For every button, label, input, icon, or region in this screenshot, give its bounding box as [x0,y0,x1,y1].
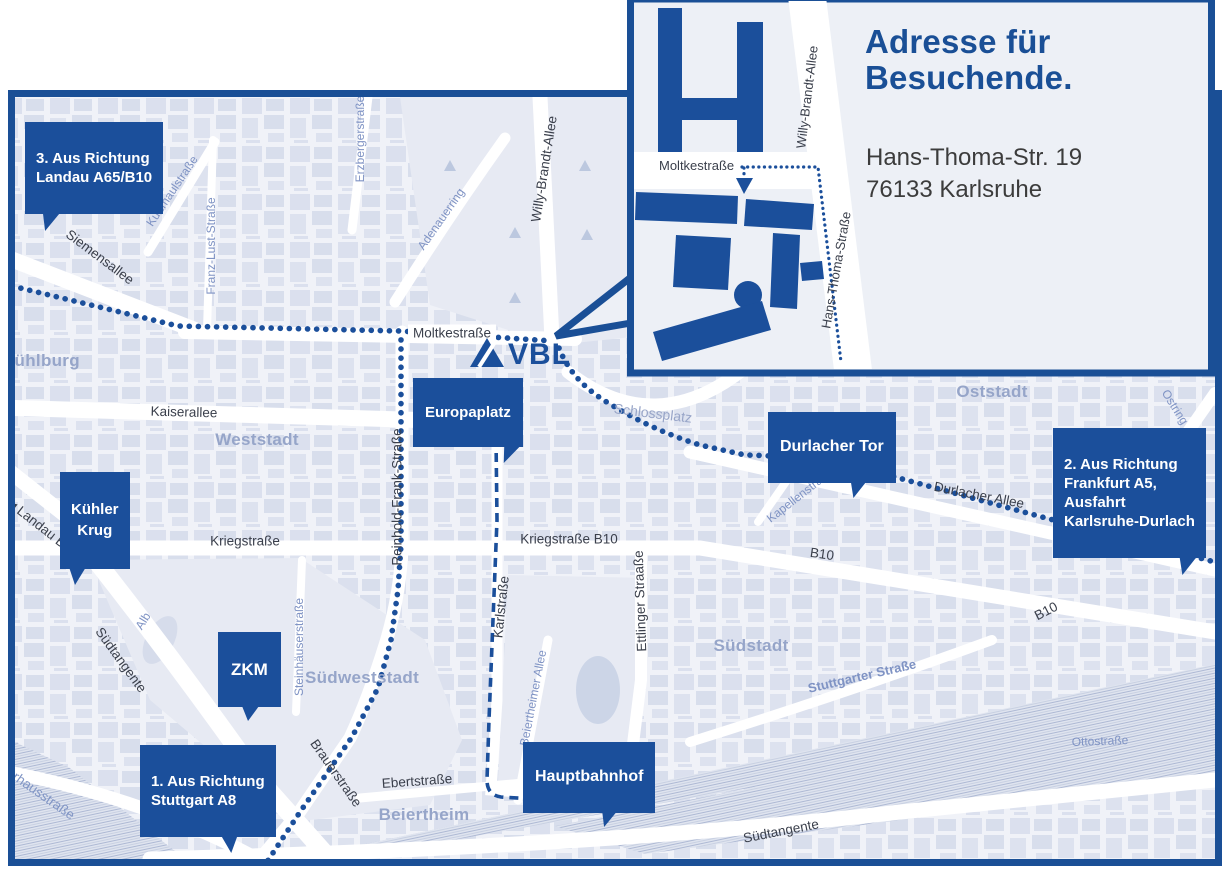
street-label-beiertheimer-allee: Beiertheimer Allee [517,649,549,747]
callout-hauptbahnhof-text: Hauptbahnhof [535,768,643,785]
street-label-ettlinger-strasse: Ettlinger Straaße [631,550,650,652]
callout-zkm: ZKM [218,632,281,707]
callout-route-stuttgart: 1. Aus Richtung Stuttgart A8 [140,745,276,837]
inset-title: Adresse für Besuchende. [865,24,1073,97]
callout-route-frankfurt-text: 2. Aus Richtung Frankfurt A5, Ausfahrt K… [1064,456,1195,530]
street-label-erzbergerstrasse: Erzbergerstraße [353,97,367,182]
callout-route-stuttgart-text: 1. Aus Richtung Stuttgart A8 [151,773,265,809]
street-label-adenauerring: Adenauerring [415,185,468,252]
street-label-siemensallee: Siemensallee [63,227,137,288]
callout-tail [69,567,86,585]
karlsruhe-directions-map: Mühlburg Weststadt Südweststadt Südstadt… [0,0,1230,874]
callout-tail [847,480,867,498]
street-label-stuttgarter-strasse: Stuttgarter Straße [806,656,917,695]
street-label-reinhold-frank-strasse: Reinhold-Frank-Straße [390,428,405,565]
callout-kuehler-krug: Kühler Krug [60,472,130,569]
street-label-kaiserallee: Kaiserallee [150,404,217,421]
street-label-ottostrasse: Ottostraße [1071,733,1128,749]
district-suedweststadt: Südweststadt [305,668,419,688]
street-label-suedtangente-sued: Südtangente [742,816,820,845]
vbl-logo-text: VBL [508,341,571,370]
district-oststadt: Oststadt [956,382,1027,402]
callout-durlacher-tor: Durlacher Tor [768,412,896,483]
vbl-triangle-icon [468,336,506,369]
street-label-franz-lust-strasse: Franz-Lust-Straße [204,197,218,294]
vbl-logo: VBL [468,336,571,369]
district-muehlburg: Mühlburg [15,351,80,371]
callout-route-landau-text: 3. Aus Richtung Landau A65/B10 [36,150,152,186]
street-label-pulverhausstrasse: Pulverhausstraße [15,750,78,823]
street-label-ostring: Ostring [1159,387,1191,427]
place-label-schlossplatz: Schlossplatz [613,400,693,425]
street-label-b10-suedost: B10 [1032,599,1060,623]
street-label-suedtangente-west: Südtangente [92,625,149,696]
street-label-karlstrasse: Karlstraße [490,575,511,639]
inset-address: Hans-Thoma-Str. 19 76133 Karlsruhe [866,142,1082,205]
callout-route-landau: 3. Aus Richtung Landau A65/B10 [25,122,163,214]
river-label-alb: Alb [132,610,153,632]
district-weststadt: Weststadt [215,430,299,450]
district-suedstadt: Südstadt [713,636,788,656]
street-label-kriegstrasse: Kriegstraße [210,534,280,549]
street-label-b10-mid: B10 [809,545,835,563]
callout-hauptbahnhof: Hauptbahnhof [523,742,655,813]
callout-kuehler-krug-text: Kühler Krug [71,501,119,538]
street-label-ebertstrasse: Ebertstraße [381,771,452,791]
callout-zkm-text: ZKM [231,660,268,679]
inset-street-label-moltkestrasse: Moltkestraße [659,158,734,173]
callout-tail [242,706,259,721]
street-label-durlacher-allee: Durlacher Allee [933,479,1026,511]
street-label-brauerstrasse: Brauerstraße [307,736,364,809]
street-label-steinhaeuserstrasse: Steinhäuserstraße [292,598,306,696]
callout-route-frankfurt: 2. Aus Richtung Frankfurt A5, Ausfahrt K… [1053,428,1206,558]
callout-europaplatz-text: Europaplatz [425,404,511,421]
callout-tail [1176,557,1196,575]
district-beiertheim: Beiertheim [379,805,470,825]
street-label-willy-brandt-allee: Willy-Brandt-Allee [528,115,560,223]
callout-europaplatz: Europaplatz [413,378,523,447]
street-label-kriegstrasse-b10: Kriegstraße B10 [520,532,618,547]
callout-durlacher-tor-text: Durlacher Tor [780,438,884,455]
